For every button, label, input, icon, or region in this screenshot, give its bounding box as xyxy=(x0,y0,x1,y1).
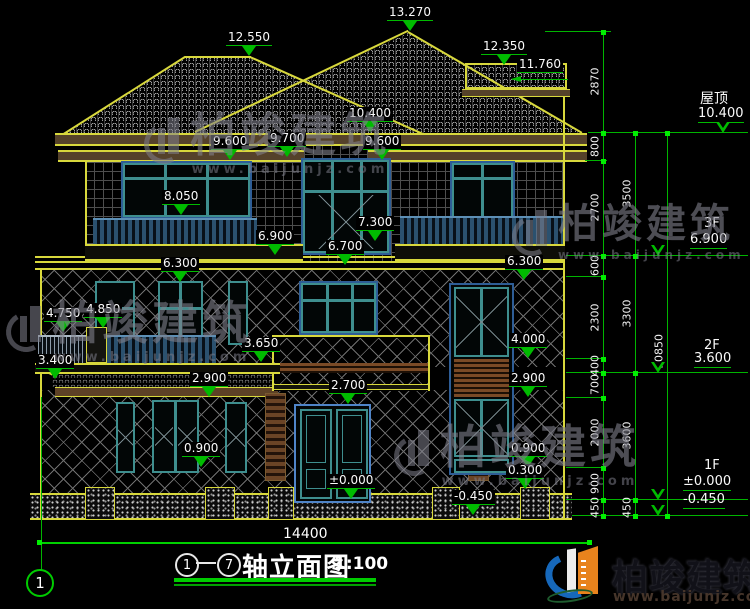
dim-tick xyxy=(601,254,606,259)
dim-chain-mid xyxy=(635,133,636,516)
dim-tick xyxy=(601,357,606,362)
brace-glazing xyxy=(118,404,133,471)
balcony-rail-2f xyxy=(107,335,216,365)
elevation-label: 4.000 xyxy=(509,333,547,358)
elevation-label-arrow: 11.760 xyxy=(512,58,568,80)
door-panel xyxy=(306,415,326,463)
elevation-label: 9.700 xyxy=(268,132,306,157)
elevation-label: 6.700 xyxy=(326,240,364,265)
drawing-scale: 1:100 xyxy=(334,554,388,574)
pilaster-ornament-left xyxy=(265,393,286,481)
floor-marker xyxy=(651,489,665,500)
window-2f-center xyxy=(301,283,376,333)
title-axis-from-number: 1 xyxy=(183,558,191,573)
elevation-label: 9.600 xyxy=(211,135,249,160)
transom-bar xyxy=(305,190,387,193)
brand-building-white xyxy=(567,548,576,592)
elevation-label: 6.300 xyxy=(161,257,199,282)
floor-value-3f: 6.900 xyxy=(690,232,727,249)
title-dash xyxy=(196,562,216,564)
dim-tick xyxy=(601,466,606,471)
canopy-louver xyxy=(274,363,428,373)
plinth-block xyxy=(520,487,550,520)
title-underline xyxy=(174,578,376,582)
floor-marker xyxy=(651,362,665,373)
elevation-label: -0.450 xyxy=(452,490,495,515)
elevation-label: 6.300 xyxy=(505,255,543,280)
dim-value: 2870 xyxy=(589,62,602,102)
floor-marker xyxy=(651,245,665,256)
left-arrow-icon xyxy=(512,79,568,80)
dim-tick xyxy=(601,371,606,376)
elevation-label: 3.400 xyxy=(36,354,74,379)
stack-window-2f xyxy=(454,287,509,357)
dim-tick xyxy=(665,514,670,519)
elevation-label: 4.850 xyxy=(84,303,122,328)
floor-value-roof: 10.400 xyxy=(698,106,744,123)
door-panel xyxy=(306,469,326,489)
title-underline-2 xyxy=(174,584,376,586)
dim-tick xyxy=(665,131,670,136)
axis-bubble-number: 1 xyxy=(35,574,45,592)
dim-value: 3600 xyxy=(621,416,634,456)
dim-tick xyxy=(633,514,638,519)
elevation-label: 0.900 xyxy=(182,442,220,467)
elevation-label: 4.750 xyxy=(44,307,82,332)
main-eave-band xyxy=(55,133,587,146)
dim-tick xyxy=(601,30,606,35)
mullion xyxy=(179,283,182,343)
floor-label-roof: 屋顶 xyxy=(700,88,728,108)
balcony-rail-3f-right xyxy=(400,216,563,246)
elevation-label: 13.270 xyxy=(387,6,433,31)
title-axis-to: 7 xyxy=(217,553,241,577)
elevation-label: 8.050 xyxy=(162,190,200,215)
ground-dim-line xyxy=(38,542,590,544)
dim-tick xyxy=(601,275,606,280)
elevation-label: 10.400 xyxy=(347,107,393,132)
dim-value: 3500 xyxy=(621,174,634,214)
canopy-hatch-upper xyxy=(274,338,428,363)
elevation-drawing-canvas: 2870 800 2700 600 2300 400 700 2000 900 … xyxy=(0,0,750,609)
floor-marker xyxy=(716,122,730,133)
dim-value: 450 xyxy=(621,488,634,528)
elevation-label: 6.900 xyxy=(256,230,294,255)
dim-tick xyxy=(601,396,606,401)
dim-tick xyxy=(587,540,592,545)
dim-value: 600 xyxy=(589,246,602,286)
canopy-right-edge xyxy=(428,335,430,391)
stack-louver-band xyxy=(454,359,509,397)
porch-fascia xyxy=(55,387,278,397)
window-1f-left3 xyxy=(225,402,247,473)
floor-marker xyxy=(651,505,665,516)
elevation-label: 2.700 xyxy=(329,379,367,404)
floor-value-2f: 3.600 xyxy=(694,351,731,368)
door-panel xyxy=(342,415,362,463)
brace-glazing xyxy=(456,401,507,455)
elevation-label: 12.550 xyxy=(226,31,272,56)
dormer-support xyxy=(563,97,565,150)
dim-value: 2700 xyxy=(589,188,602,228)
elevation-label: 2.900 xyxy=(190,372,228,397)
dim-tick xyxy=(601,159,606,164)
floor-value-1f: ±0.000 xyxy=(683,474,731,491)
axis-bubble: 1 xyxy=(26,569,54,597)
canopy-top-line xyxy=(272,335,430,337)
elevation-label: 0.300 xyxy=(506,464,544,489)
dim-value: 700 xyxy=(589,365,602,405)
floor-label-1f: 1F xyxy=(704,458,720,473)
balcony-pier-2f xyxy=(86,327,107,363)
brand-url: www.baijunjz.com xyxy=(613,589,750,605)
dim-tick xyxy=(633,371,638,376)
dim-chain-outer xyxy=(667,133,668,516)
elevation-label: 2.900 xyxy=(509,372,547,397)
dim-value: 2000 xyxy=(589,413,602,453)
dim-tick xyxy=(633,498,638,503)
dim-tick xyxy=(601,131,606,136)
brace-glazing xyxy=(227,404,245,471)
title-axis-to-number: 7 xyxy=(225,558,233,573)
dim-tick xyxy=(601,514,606,519)
elevation-label: 3.650 xyxy=(242,337,280,362)
total-width-value: 14400 xyxy=(283,526,328,542)
elevation-label: 9.600 xyxy=(363,135,401,160)
dim-tick xyxy=(633,131,638,136)
elevation-label: 7.300 xyxy=(356,216,394,241)
balcony-rail-3f-left xyxy=(93,218,257,246)
plinth-block xyxy=(205,487,235,520)
belt-course xyxy=(35,261,565,270)
dim-tick xyxy=(633,254,638,259)
dim-tick xyxy=(601,498,606,503)
transom-bar xyxy=(160,307,201,310)
dim-chain-inner xyxy=(603,32,604,516)
mullion xyxy=(351,285,354,331)
stack-spandrel-panel xyxy=(454,459,509,473)
plinth-block xyxy=(268,487,294,520)
window-stack-right xyxy=(449,283,514,475)
transom-bar xyxy=(303,299,374,302)
dim-value: 800 xyxy=(589,127,602,167)
mullion xyxy=(174,402,177,471)
mullion xyxy=(206,165,209,215)
dim-value: 450 xyxy=(589,488,602,528)
stack-window-1f xyxy=(454,399,509,457)
title-axis-from: 1 xyxy=(175,553,199,577)
brand-building-windows xyxy=(581,556,586,586)
wall-right-edge xyxy=(563,146,565,520)
plinth-block xyxy=(85,487,115,520)
dim-tick xyxy=(37,540,42,545)
window-1f-left1 xyxy=(116,402,135,473)
brace-glazing xyxy=(456,289,507,355)
left-roof-ridge xyxy=(185,56,251,58)
floor-label-3f: 3F xyxy=(704,216,720,231)
brand-logo-icon xyxy=(545,546,609,606)
mullion xyxy=(326,285,329,331)
transom-bar xyxy=(125,177,248,180)
dim-value: 2300 xyxy=(589,298,602,338)
dim-value: 3300 xyxy=(621,294,634,334)
dormer-eave xyxy=(462,89,570,97)
elevation-label: ±0.000 xyxy=(327,474,375,499)
brace-glazing xyxy=(155,403,173,470)
floor-value-below: -0.450 xyxy=(683,492,725,509)
